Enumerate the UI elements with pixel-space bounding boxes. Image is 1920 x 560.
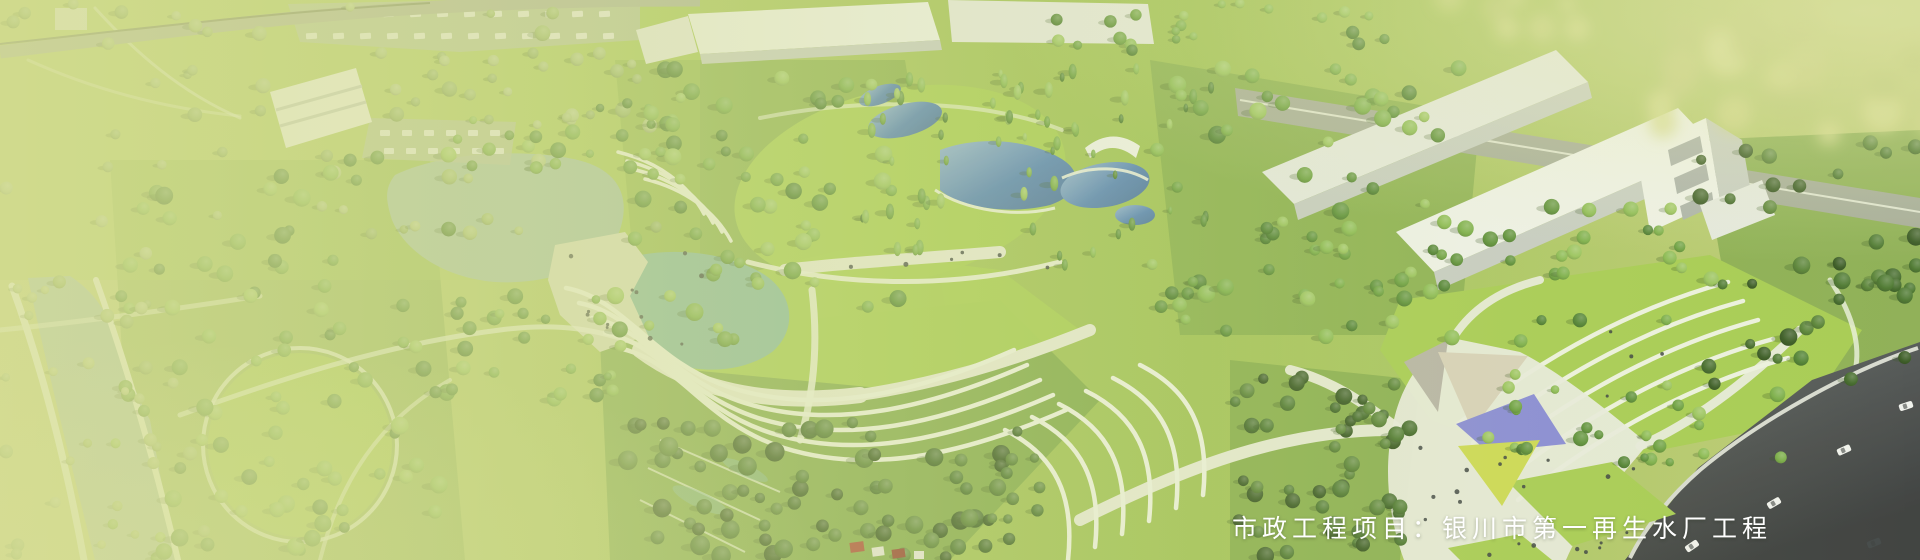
caption-text: 市政工程项目：银川市第一再生水厂工程 <box>1232 514 1772 544</box>
aerial-rendering <box>0 0 1920 560</box>
haze-overlay <box>0 0 1920 560</box>
project-banner: 市政工程项目：银川市第一再生水厂工程 <box>0 0 1920 560</box>
